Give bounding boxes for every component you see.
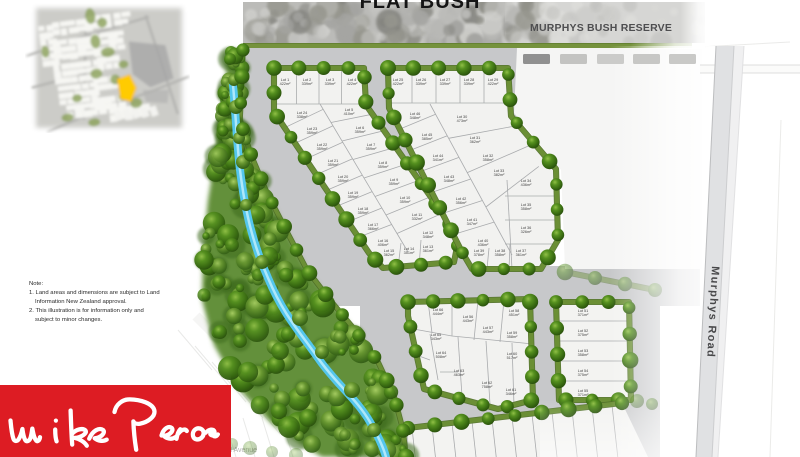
svg-text:Lot 17366m²: Lot 17366m² [368, 223, 379, 231]
svg-text:Lot 40436m²: Lot 40436m² [478, 239, 489, 247]
svg-text:Lot 11332m²: Lot 11332m² [412, 213, 423, 221]
svg-text:Lot 64508m²: Lot 64508m² [436, 351, 447, 359]
svg-text:Lot 62758m²: Lot 62758m² [482, 381, 493, 389]
svg-text:FLAT BUSH: FLAT BUSH [360, 0, 481, 13]
svg-text:Lot 53358m²: Lot 53358m² [578, 349, 589, 357]
svg-text:Lot 18359m²: Lot 18359m² [358, 207, 369, 215]
svg-text:Lot 45385m²: Lot 45385m² [422, 133, 433, 141]
svg-text:Lot 58451m²: Lot 58451m² [509, 309, 520, 317]
svg-text:Lot 21359m²: Lot 21359m² [328, 159, 339, 167]
svg-text:Lot 65343m²: Lot 65343m² [431, 333, 442, 341]
svg-text:Lot 12348m²: Lot 12348m² [423, 231, 434, 239]
svg-text:Note:: Note: [29, 281, 43, 287]
svg-text:Lot 30473m²: Lot 30473m² [457, 115, 468, 123]
svg-text:Lot 39378m²: Lot 39378m² [474, 249, 485, 257]
svg-text:Lot 26339m²: Lot 26339m² [416, 78, 427, 86]
svg-text:Lot 41347m²: Lot 41347m² [467, 218, 478, 226]
svg-text:Lot 13361m²: Lot 13361m² [423, 245, 434, 253]
svg-text:Lot 20359m²: Lot 20359m² [338, 175, 349, 183]
svg-text:Lot 15362m²: Lot 15362m² [384, 249, 395, 257]
svg-text:Lot 22359m²: Lot 22359m² [317, 143, 328, 151]
svg-text:Lot 56443m²: Lot 56443m² [463, 315, 474, 323]
svg-text:1. Land areas and dimensions a: 1. Land areas and dimensions are subject… [29, 290, 160, 296]
svg-text:Lot 54375m²: Lot 54375m² [578, 369, 589, 377]
svg-text:Lot 60517m²: Lot 60517m² [507, 352, 518, 360]
svg-text:Lot 19359m²: Lot 19359m² [348, 191, 359, 199]
svg-text:Lot 51371m²: Lot 51371m² [578, 309, 589, 317]
svg-text:Lot 46348m²: Lot 46348m² [410, 112, 421, 120]
svg-text:Lot 34436m²: Lot 34436m² [521, 179, 532, 187]
svg-text:Lot 31362m²: Lot 31362m² [470, 136, 481, 144]
svg-text:Lot 57443m²: Lot 57443m² [483, 326, 494, 334]
svg-text:subject to minor changes.: subject to minor changes. [35, 317, 102, 323]
svg-text:Lot 37361m²: Lot 37361m² [516, 249, 527, 257]
svg-text:2. This illustration is for in: 2. This illustration is for information … [29, 308, 144, 314]
svg-text:Lot 27339m²: Lot 27339m² [440, 78, 451, 86]
svg-text:Lot 25422m²: Lot 25422m² [393, 78, 404, 86]
svg-text:Lot 14351m²: Lot 14351m² [404, 247, 415, 255]
svg-text:Lot 28339m²: Lot 28339m² [464, 78, 475, 86]
svg-text:Lot 32358m²: Lot 32358m² [483, 154, 494, 162]
svg-text:Lot 38358m²: Lot 38358m² [495, 249, 506, 257]
svg-text:Lot 10359m²: Lot 10359m² [400, 196, 411, 204]
svg-text:Lot 52375m²: Lot 52375m² [578, 329, 589, 337]
svg-text:Lot 29422m²: Lot 29422m² [488, 78, 499, 86]
svg-text:Lot 63463m²: Lot 63463m² [454, 369, 465, 377]
svg-text:Lot 59358m²: Lot 59358m² [507, 331, 518, 339]
svg-text:Lot 23359m²: Lot 23359m² [307, 127, 318, 135]
svg-text:Lot 44341m²: Lot 44341m² [433, 154, 444, 162]
svg-text:MURPHYS BUSH RESERVE: MURPHYS BUSH RESERVE [530, 22, 672, 34]
svg-text:Lot 35358m²: Lot 35358m² [521, 203, 532, 211]
svg-text:Lot 43348m²: Lot 43348m² [444, 175, 455, 183]
svg-text:Information New Zealand approv: Information New Zealand approval. [35, 299, 127, 305]
svg-text:Lot 36326m²: Lot 36326m² [521, 226, 532, 234]
svg-text:Lot 16406m²: Lot 16406m² [378, 239, 389, 247]
svg-text:Lot 42356m²: Lot 42356m² [456, 197, 467, 205]
svg-text:Lot 61346m²: Lot 61346m² [506, 388, 517, 396]
svg-text:Lot 33382m²: Lot 33382m² [494, 169, 505, 177]
svg-text:Lot 66444m²: Lot 66444m² [433, 308, 444, 316]
svg-text:Lot 24338m²: Lot 24338m² [297, 111, 308, 119]
